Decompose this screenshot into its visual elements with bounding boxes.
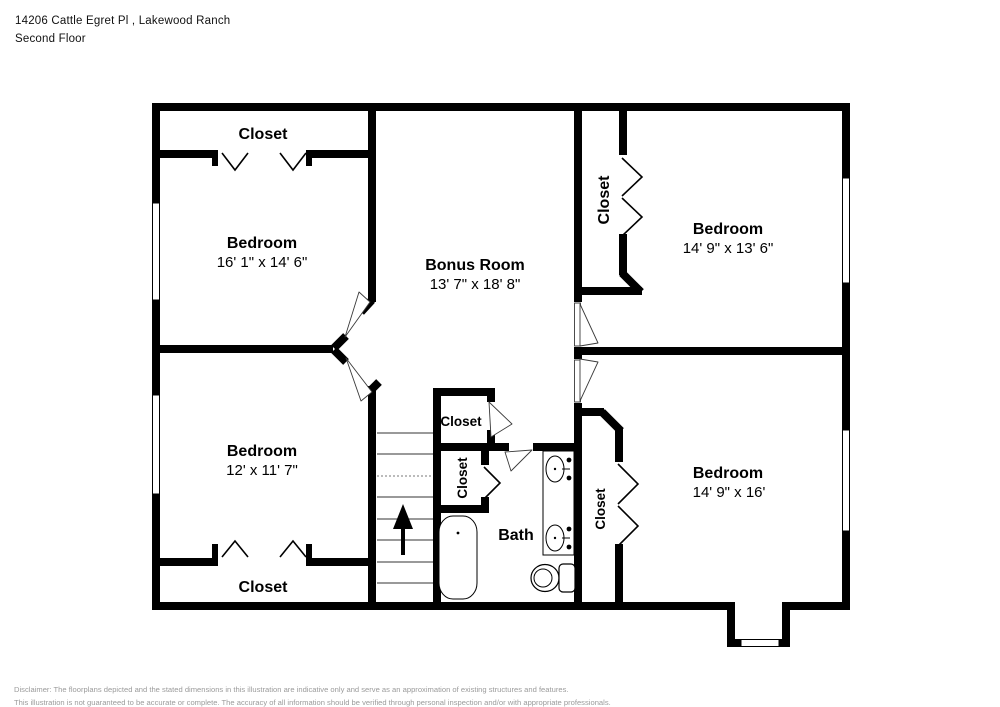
floorplan-svg: Closet Bedroom 16' 1" x 14' 6" Bonus Roo… [0, 0, 1000, 707]
floor-subtitle: Second Floor [15, 33, 86, 45]
label-bedroom-bottom-left: Bedroom [227, 443, 297, 460]
window-left-top [153, 203, 160, 300]
label-bedroom-top-right: Bedroom [693, 221, 763, 238]
dims-bonus-room: 13' 7" x 18' 8" [430, 276, 521, 293]
window-left-bottom [153, 395, 160, 494]
dims-bedroom-bottom-left: 12' x 11' 7" [226, 462, 298, 479]
label-closet-top-right: Closet [596, 175, 613, 225]
label-closet-mid: Closet [455, 457, 470, 499]
window-right-top [843, 178, 850, 283]
stairs-up-arrow-icon [393, 504, 413, 555]
label-closet-top-left: Closet [239, 126, 289, 143]
label-bonus-room: Bonus Room [425, 257, 525, 274]
vanity [543, 451, 574, 555]
window-right-bottom [843, 430, 850, 531]
dims-bedroom-bottom-right: 14' 9" x 16' [693, 484, 766, 501]
label-closet-bottom-right: Closet [593, 488, 608, 530]
toilet [531, 564, 575, 592]
exterior-walls [152, 103, 850, 647]
label-closet-hall: Closet [440, 414, 482, 429]
room-labels: Closet Bedroom 16' 1" x 14' 6" Bonus Roo… [217, 126, 774, 596]
staircase [377, 433, 433, 583]
floorplan-page: 14206 Cattle Egret Pl , Lakewood Ranch S… [0, 0, 1000, 707]
disclaimer-line-2: This illustration is not guaranteed to b… [14, 698, 611, 707]
dims-bedroom-top-right: 14' 9" x 13' 6" [683, 240, 774, 257]
window-bumpout [741, 640, 779, 647]
dims-bedroom-top-left: 16' 1" x 14' 6" [217, 254, 308, 271]
label-bedroom-bottom-right: Bedroom [693, 465, 763, 482]
disclaimer-line-1: Disclaimer: The floorplans depicted and … [14, 685, 569, 694]
label-bedroom-top-left: Bedroom [227, 235, 297, 252]
label-closet-bottom-left: Closet [239, 579, 289, 596]
bathtub [439, 516, 477, 599]
label-bath: Bath [498, 527, 534, 544]
address-title: 14206 Cattle Egret Pl , Lakewood Ranch [15, 15, 230, 27]
